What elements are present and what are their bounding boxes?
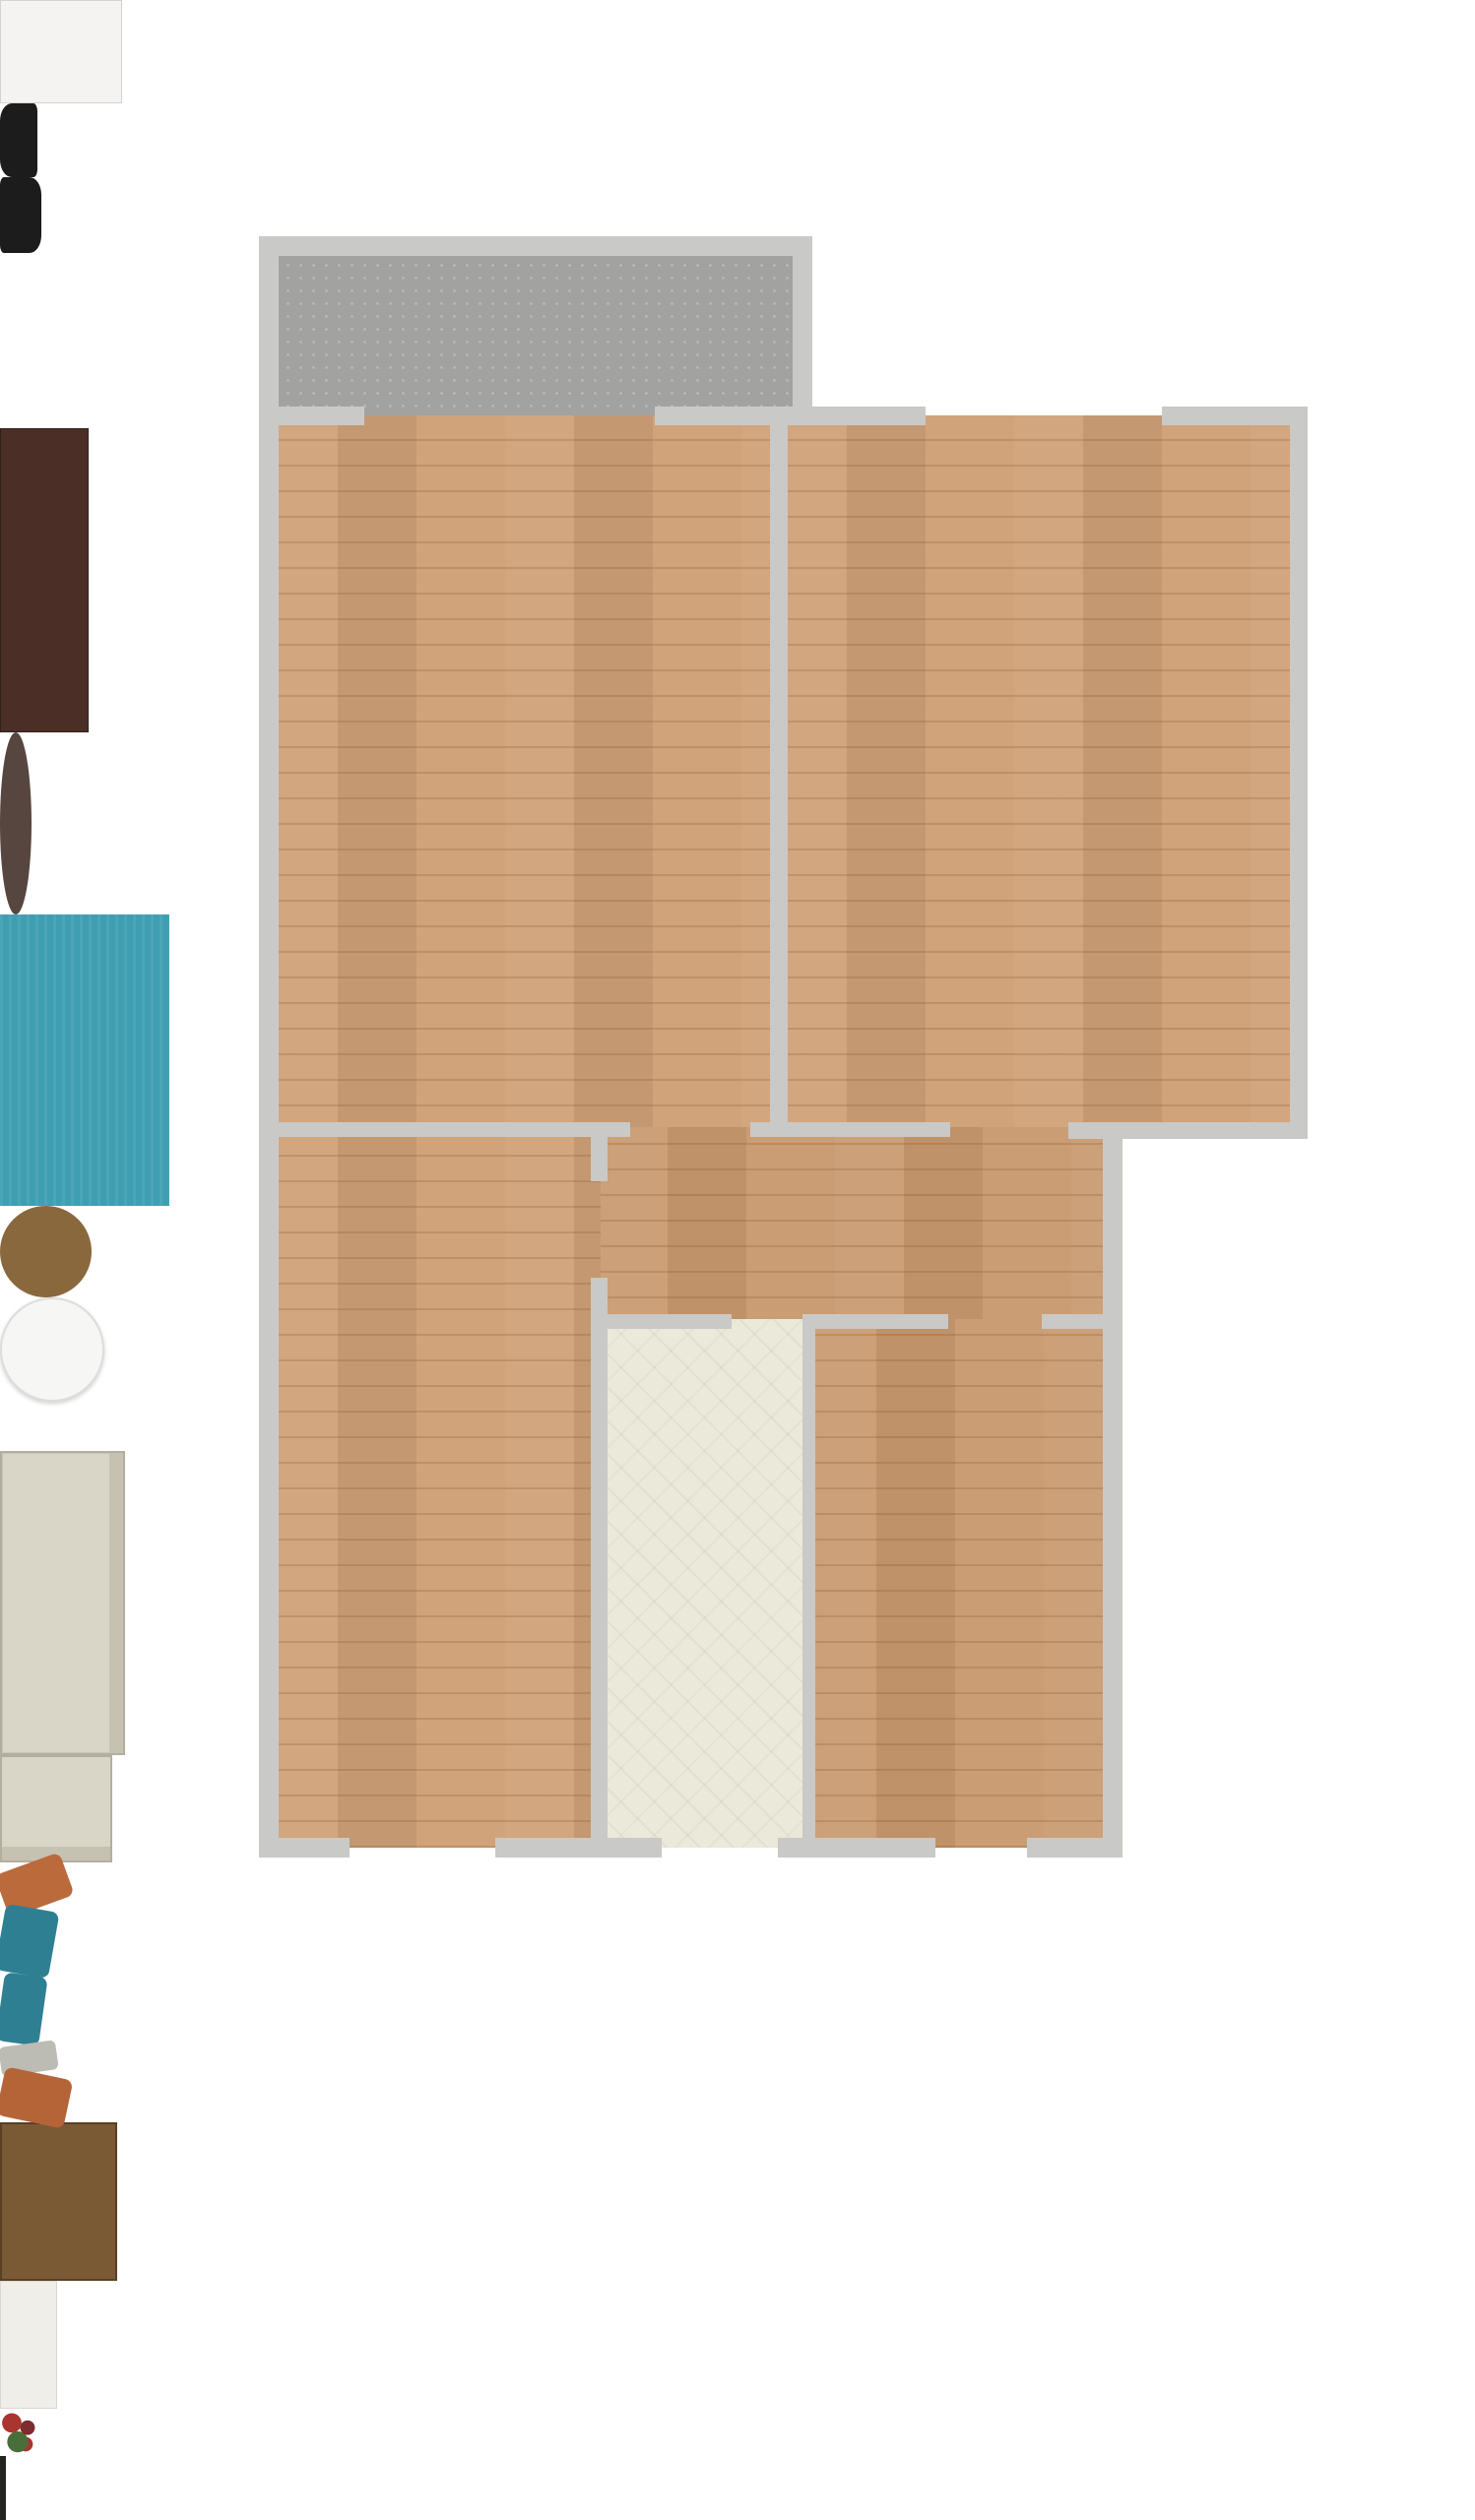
livingroom-rug [0, 914, 169, 1206]
livingroom-floor [269, 415, 778, 1132]
dining-table-runner [0, 2281, 57, 2409]
wall [802, 1314, 948, 1329]
sofa-body [0, 1451, 125, 1755]
livingroom-plant [0, 338, 91, 428]
round-rug [0, 1206, 92, 1297]
wall [1162, 407, 1308, 425]
kidsroom-floor [269, 1127, 601, 1848]
hallway-floor [599, 1127, 1113, 1324]
sideboard [0, 428, 89, 732]
wall [259, 236, 279, 1858]
coffee-table-plant [0, 1402, 49, 1451]
sofa-chaise [0, 1755, 112, 1862]
bathroom-floor [599, 1319, 810, 1848]
wall [608, 1314, 732, 1329]
coffee-table [0, 1297, 104, 1402]
wall [770, 425, 788, 1122]
floor-plan: 18 m² 18 m² [0, 0, 1475, 2520]
balcony-chair-right [0, 177, 41, 253]
balcony-plant [0, 253, 85, 338]
wall [591, 1137, 608, 1181]
balcony-chair-left [0, 103, 37, 177]
balcony-table [0, 0, 122, 103]
sofa-pillow-orange-2 [0, 2066, 73, 2128]
wall [778, 1838, 935, 1858]
bedroom-floor [778, 415, 1300, 1132]
wall [259, 236, 812, 256]
sofa-pillow-teal-2 [0, 1972, 48, 2046]
wall [793, 236, 812, 413]
wall [1027, 1838, 1122, 1858]
wall [655, 407, 788, 425]
sofa-pillow-teal [0, 1904, 59, 1980]
wall [259, 1122, 630, 1137]
wall [259, 1838, 350, 1858]
wall [1290, 407, 1308, 1139]
wall [750, 1122, 950, 1137]
dining-table [0, 2122, 117, 2281]
dining-chair [0, 2456, 39, 2520]
wall [802, 1329, 815, 1838]
wall [770, 407, 926, 425]
kitchen-floor [807, 1319, 1113, 1848]
balcony-floor [269, 246, 802, 415]
wall [495, 1838, 662, 1858]
dining-table-flowers [0, 2409, 39, 2456]
wall [259, 407, 364, 425]
sideboard-detail [0, 732, 32, 914]
wall [1103, 1122, 1122, 1858]
wall [591, 1278, 608, 1838]
